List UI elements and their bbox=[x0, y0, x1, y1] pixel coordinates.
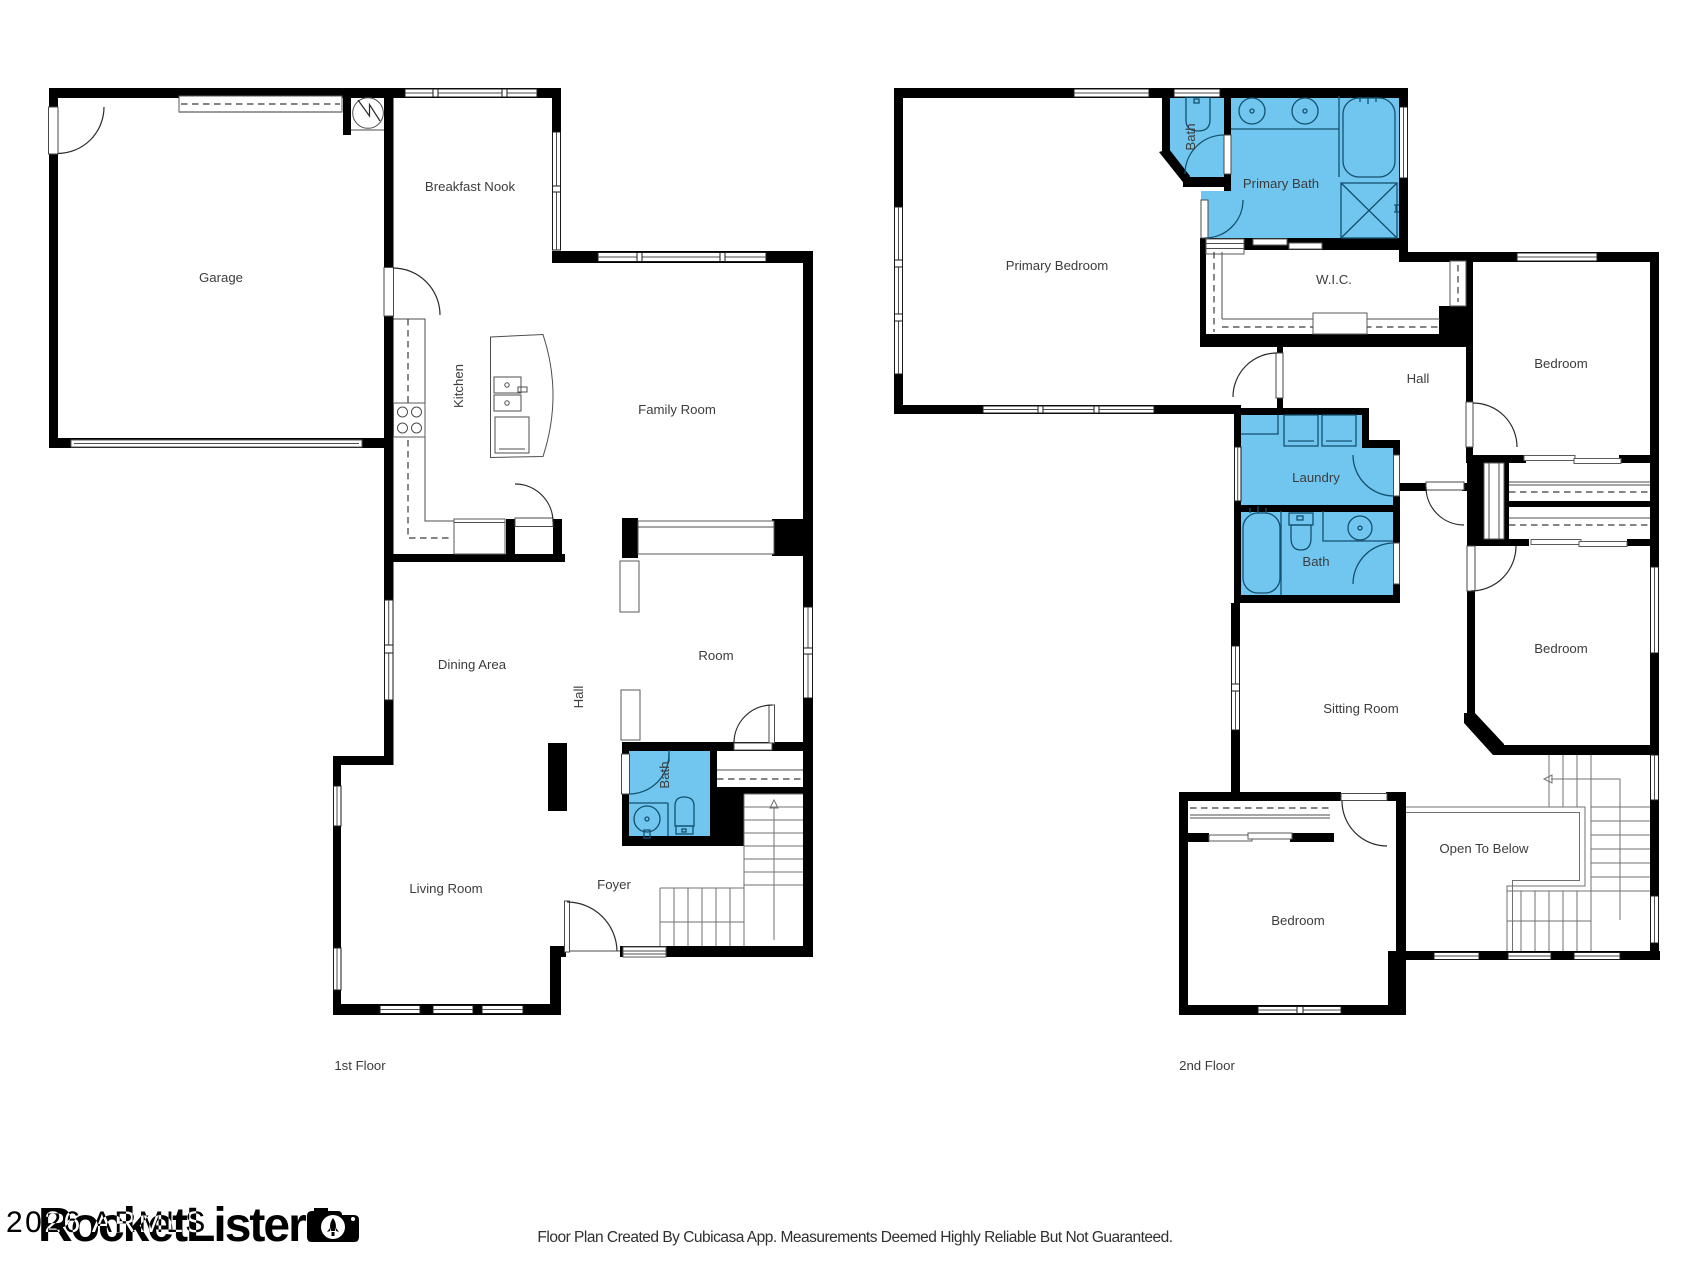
svg-text:Bedroom: Bedroom bbox=[1534, 356, 1588, 371]
svg-text:Kitchen: Kitchen bbox=[451, 364, 466, 408]
svg-text:Hall: Hall bbox=[571, 686, 586, 709]
svg-text:Primary Bath: Primary Bath bbox=[1243, 176, 1319, 191]
svg-text:Garage: Garage bbox=[199, 270, 243, 285]
svg-text:Foyer: Foyer bbox=[597, 877, 631, 892]
svg-text:Open To Below: Open To Below bbox=[1439, 841, 1529, 856]
svg-text:Bath: Bath bbox=[1183, 123, 1198, 150]
svg-text:Bedroom: Bedroom bbox=[1271, 913, 1325, 928]
svg-text:Bedroom: Bedroom bbox=[1534, 641, 1588, 656]
svg-text:Family Room: Family Room bbox=[638, 402, 716, 417]
svg-text:Room: Room bbox=[698, 648, 733, 663]
svg-text:Dining Area: Dining Area bbox=[438, 657, 507, 672]
svg-text:Laundry: Laundry bbox=[1292, 470, 1340, 485]
svg-text:W.I.C.: W.I.C. bbox=[1316, 272, 1352, 287]
svg-text:Breakfast Nook: Breakfast Nook bbox=[425, 179, 516, 194]
svg-text:Living Room: Living Room bbox=[409, 881, 482, 896]
svg-text:Bath: Bath bbox=[657, 761, 672, 788]
svg-text:Bath: Bath bbox=[1302, 554, 1329, 569]
svg-text:Sitting Room: Sitting Room bbox=[1323, 701, 1399, 716]
svg-text:2nd Floor: 2nd Floor bbox=[1179, 1058, 1235, 1073]
svg-text:Floor Plan Created By Cubicasa: Floor Plan Created By Cubicasa App. Meas… bbox=[537, 1229, 1172, 1246]
svg-text:Primary Bedroom: Primary Bedroom bbox=[1006, 258, 1109, 273]
svg-text:1st Floor: 1st Floor bbox=[334, 1058, 386, 1073]
svg-text:Hall: Hall bbox=[1407, 371, 1430, 386]
